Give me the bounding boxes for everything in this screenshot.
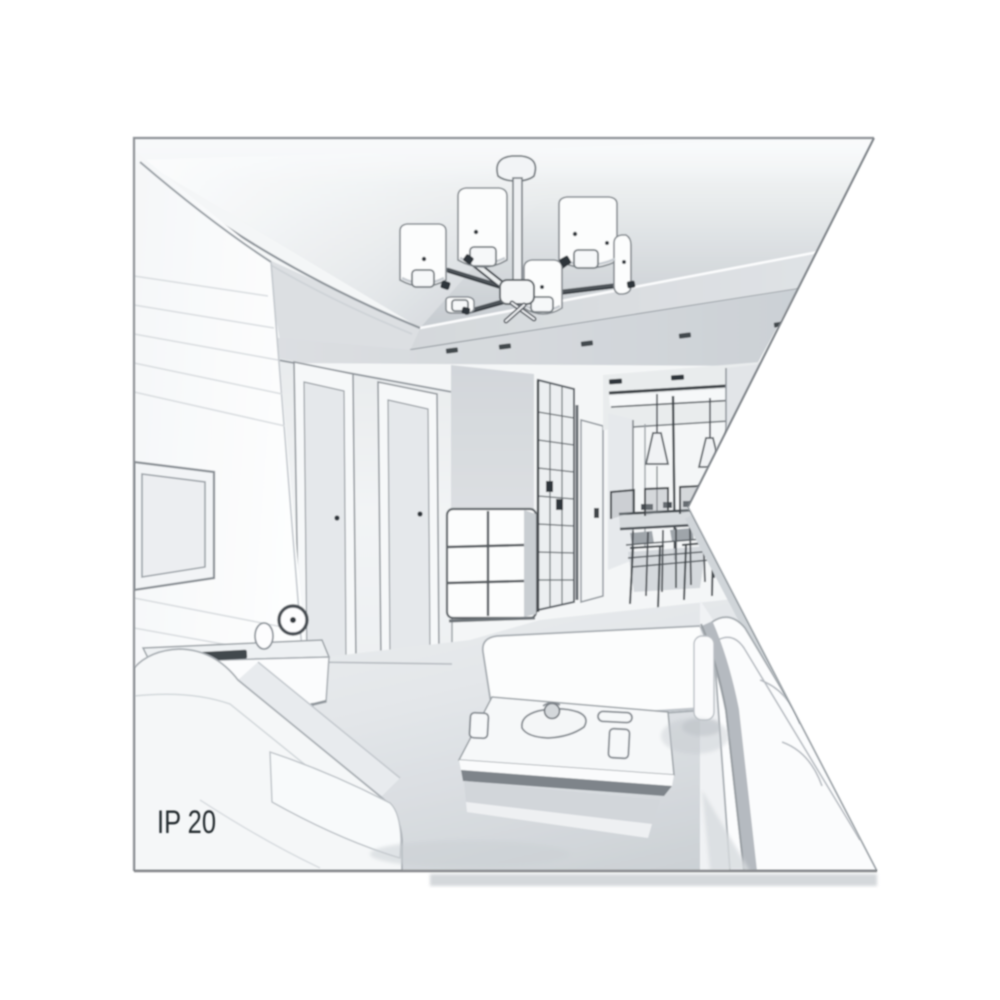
svg-text:IP 20: IP 20: [157, 804, 216, 840]
